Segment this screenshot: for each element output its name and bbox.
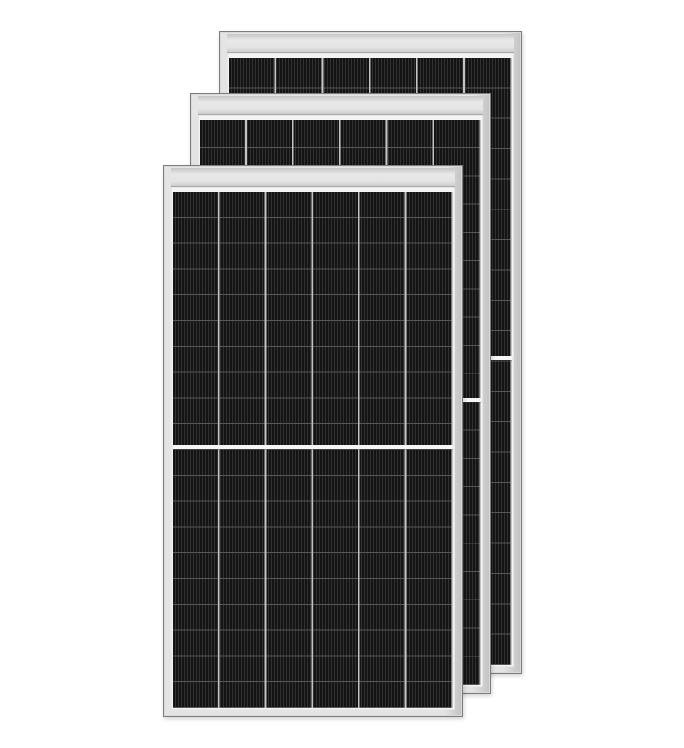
panel-top-frame-band (227, 34, 514, 53)
solar-panel-product-image (0, 0, 684, 748)
panel-top-frame-band (171, 168, 455, 187)
solar-cell-grid (173, 192, 453, 708)
panel-top-frame-band (198, 96, 483, 115)
half-cell-center-divider (173, 445, 453, 449)
solar-panel-front (163, 165, 463, 717)
panel-laminate (171, 187, 455, 710)
